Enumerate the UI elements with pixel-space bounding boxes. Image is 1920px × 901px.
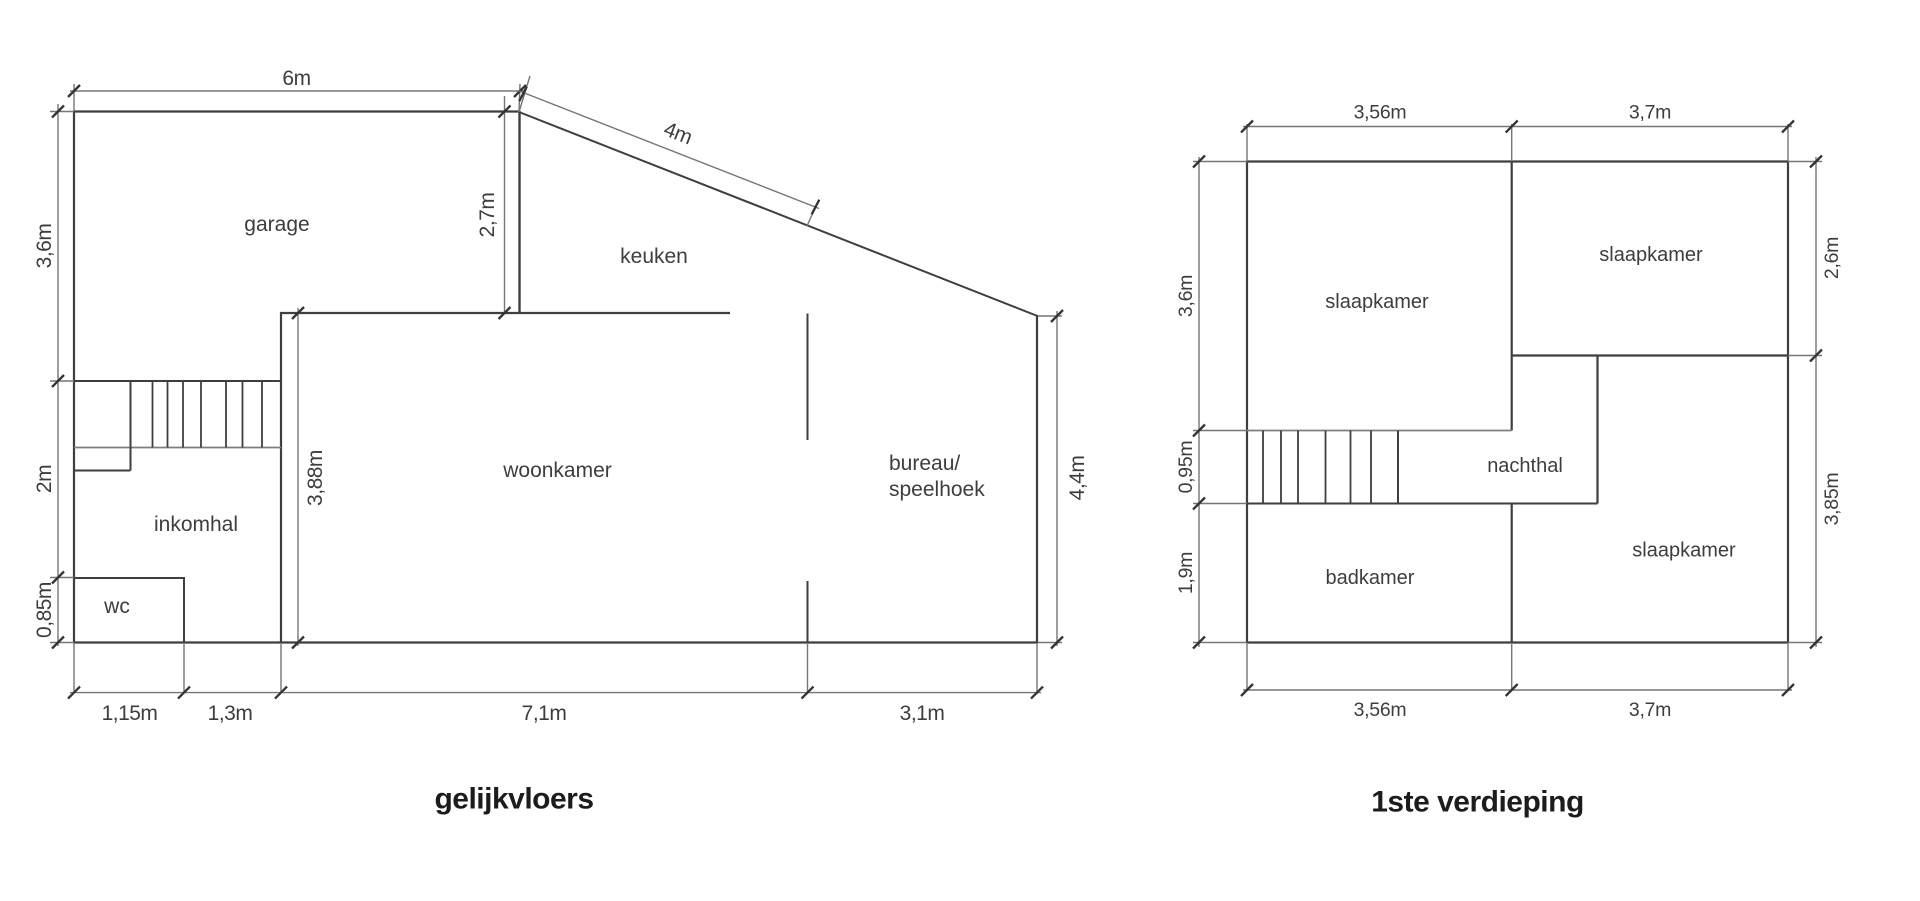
svg-text:3,6m: 3,6m [1175, 275, 1197, 317]
svg-text:wc: wc [103, 595, 130, 618]
svg-text:1,15m: 1,15m [102, 702, 158, 725]
svg-text:2,6m: 2,6m [1821, 237, 1843, 279]
svg-text:3,7m: 3,7m [1629, 699, 1671, 721]
svg-text:woonkamer: woonkamer [502, 459, 612, 482]
svg-text:3,56m: 3,56m [1354, 102, 1407, 124]
svg-text:badkamer: badkamer [1326, 567, 1415, 589]
svg-text:0,95m: 0,95m [1175, 441, 1197, 494]
svg-text:3,1m: 3,1m [900, 702, 945, 725]
svg-text:bureau/: bureau/ [889, 452, 960, 475]
svg-text:3,7m: 3,7m [1629, 102, 1671, 124]
svg-text:3,85m: 3,85m [1821, 473, 1843, 526]
svg-text:2m: 2m [33, 465, 56, 493]
svg-text:2,7m: 2,7m [476, 193, 499, 238]
svg-text:inkomhal: inkomhal [154, 513, 238, 536]
svg-text:3,6m: 3,6m [33, 224, 56, 269]
svg-text:speelhoek: speelhoek [889, 478, 985, 501]
svg-text:nachthal: nachthal [1487, 455, 1563, 477]
svg-text:slaapkamer: slaapkamer [1599, 244, 1703, 266]
svg-text:1ste verdieping: 1ste verdieping [1371, 786, 1584, 819]
svg-text:4,4m: 4,4m [1066, 456, 1089, 501]
svg-text:3,88m: 3,88m [304, 450, 327, 506]
svg-text:slaapkamer: slaapkamer [1325, 291, 1429, 313]
svg-text:slaapkamer: slaapkamer [1632, 540, 1736, 562]
svg-text:0,85m: 0,85m [33, 582, 56, 638]
svg-text:1,9m: 1,9m [1175, 552, 1197, 594]
svg-text:3,56m: 3,56m [1354, 699, 1407, 721]
svg-text:garage: garage [244, 213, 309, 236]
svg-text:7,1m: 7,1m [522, 702, 567, 725]
svg-text:1,3m: 1,3m [208, 702, 253, 725]
svg-text:keuken: keuken [620, 245, 688, 268]
svg-text:6m: 6m [282, 67, 310, 90]
svg-text:gelijkvloers: gelijkvloers [434, 783, 593, 816]
